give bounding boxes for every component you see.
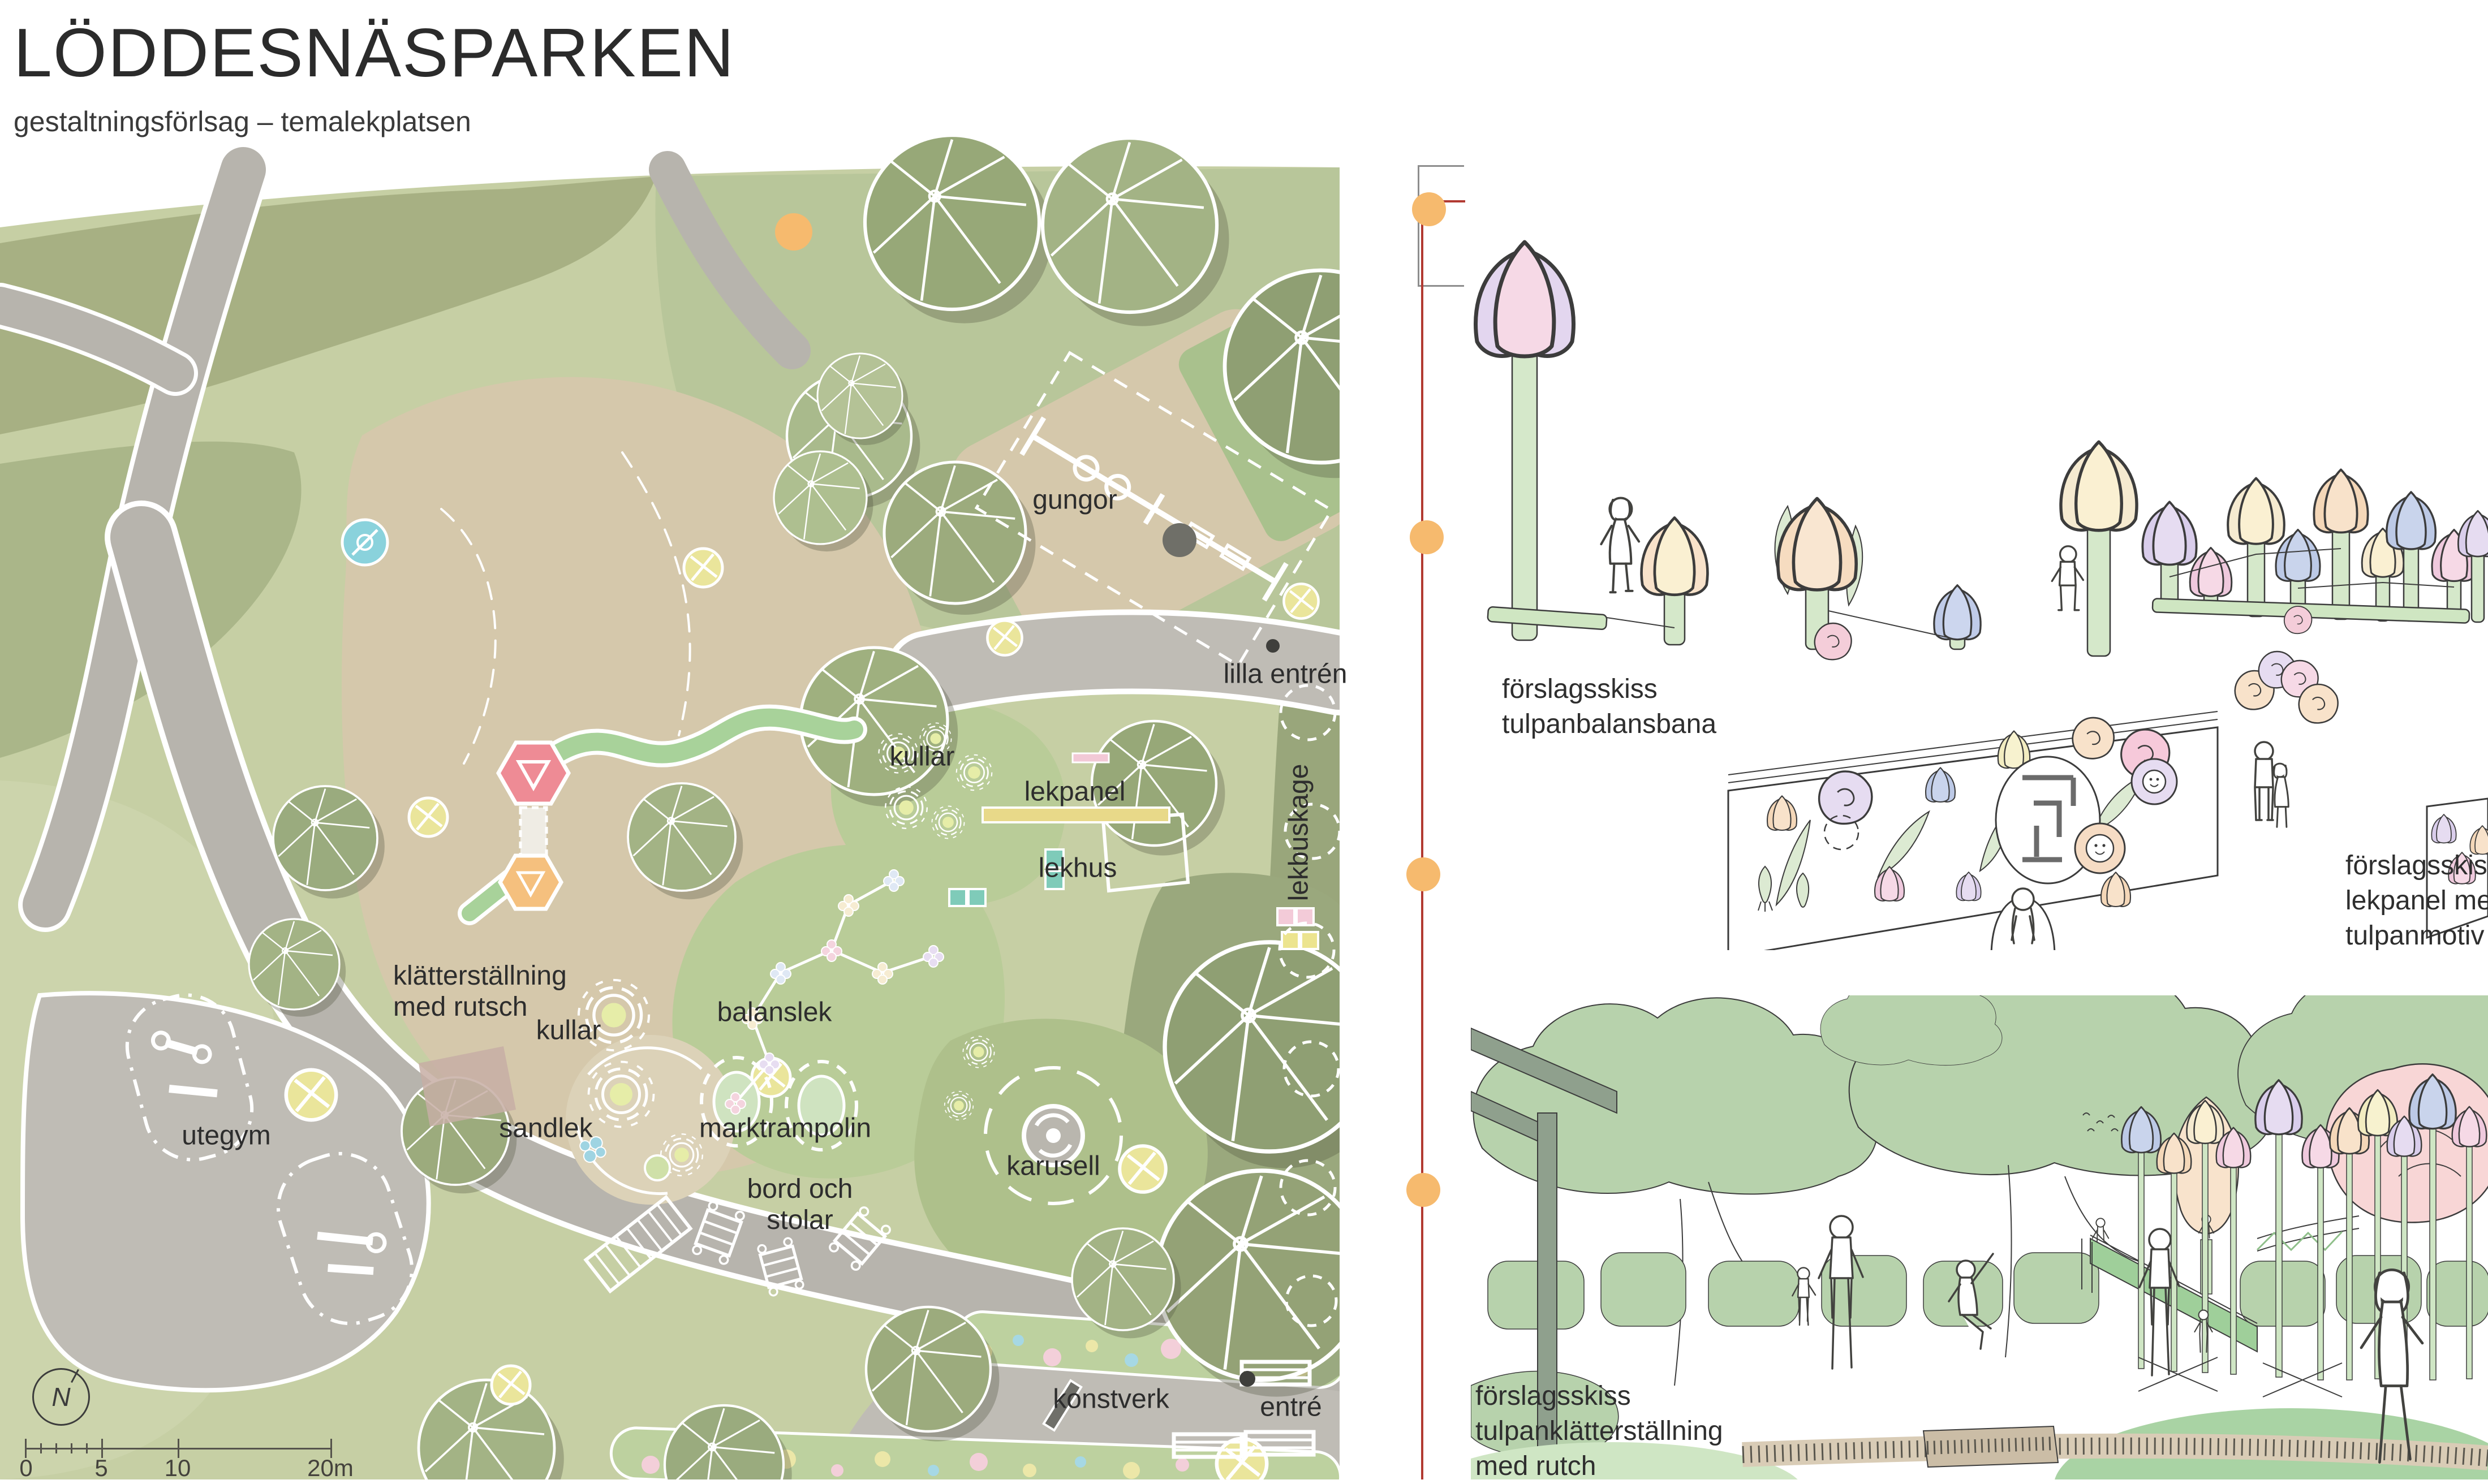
tulip-stems xyxy=(1475,242,2488,656)
children-figures xyxy=(2255,742,2288,827)
north-arrow-icon: N xyxy=(32,1368,90,1426)
flower-step-icon xyxy=(2284,606,2312,633)
page-subtitle: gestaltningsförlsag – temalekplatsen xyxy=(14,105,735,138)
page-title: LÖDDESNÄSPARKEN xyxy=(14,15,735,90)
header: LÖDDESNÄSPARKEN gestaltningsförlsag – te… xyxy=(14,15,735,138)
plan-label-bord-och-stolar: bord och stolar xyxy=(747,1174,853,1236)
scale-tick xyxy=(55,1443,57,1453)
plan-label-entre: entré xyxy=(1260,1392,1322,1423)
caption-klatterstallning-line1: förslagsskiss xyxy=(1475,1379,1723,1414)
section-marker-icon xyxy=(775,213,812,251)
play-panel-icon xyxy=(983,808,1169,822)
plan-label-marktrampolin: marktrampolin xyxy=(699,1113,871,1144)
north-label: N xyxy=(51,1382,70,1412)
plan-label-gungor: gungor xyxy=(1032,485,1117,516)
plan-label-lekbuskage: lekbuskage xyxy=(1284,764,1315,901)
scale-tick xyxy=(40,1443,42,1453)
plan-label-kullar-upper: kullar xyxy=(890,741,955,773)
caption-balansbana-line1: förslagsskiss xyxy=(1502,672,1716,707)
child-figure xyxy=(1601,498,1639,592)
plan-label-kullar-lower: kullar xyxy=(536,1015,601,1046)
plan-label-bord-line2: stolar xyxy=(747,1205,853,1236)
section-marker-icon xyxy=(1410,520,1444,554)
caption-lekpanel-line2: lekpanel med xyxy=(2345,883,2488,918)
caption-lekpanel: förslagsskiss lekpanel med tulpanmotiv xyxy=(2345,848,2488,954)
scale-label-10: 10 xyxy=(165,1455,191,1482)
caption-lekpanel-line3: tulpanmotiv xyxy=(2345,918,2488,954)
scale-tick xyxy=(86,1443,88,1453)
site-plan xyxy=(0,0,1340,1479)
plan-label-sandlek: sandlek xyxy=(499,1113,592,1144)
plan-label-klatterstallning: klätterställning med rutsch xyxy=(393,960,567,1023)
plan-label-klatterstallning-line1: klätterställning xyxy=(393,960,567,991)
plan-label-konstverk: konstverk xyxy=(1053,1384,1169,1415)
scale-bar: 0 5 10 20m xyxy=(25,1436,342,1479)
section-bracket-vertical xyxy=(1418,165,1419,287)
caption-klatterstallning-line2: tulpanklätterställning xyxy=(1475,1414,1723,1449)
section-marker-icon xyxy=(1412,192,1446,226)
scale-label-5: 5 xyxy=(94,1455,107,1482)
plan-label-lekpanel: lekpanel xyxy=(1025,776,1126,808)
child-figure xyxy=(2052,546,2083,610)
section-bracket-top xyxy=(1418,165,1464,167)
scale-label-0: 0 xyxy=(19,1455,32,1482)
section-marker-icon xyxy=(1406,1173,1440,1207)
section-marker-icon xyxy=(1406,857,1440,891)
design-sheet: { "header": { "title": "LÖDDESNÄSPARKEN"… xyxy=(0,0,2488,1479)
plan-label-utegym: utegym xyxy=(182,1120,270,1151)
plan-label-karusell: karusell xyxy=(1006,1151,1100,1182)
plan-label-lilla-entren: lilla entrén xyxy=(1224,659,1348,690)
scale-label-20: 20m xyxy=(307,1455,354,1482)
sketch-tulpanbalansbana xyxy=(1471,158,2488,667)
caption-klatterstallning: förslagsskiss tulpanklätterställning med… xyxy=(1475,1379,1723,1484)
caption-klatterstallning-line3: med rutch xyxy=(1475,1449,1723,1484)
caption-balansbana: förslagsskiss tulpanbalansbana xyxy=(1502,672,1716,742)
rope-bridge xyxy=(2257,1216,2359,1251)
caption-lekpanel-line1: förslagsskiss xyxy=(2345,848,2488,883)
section-red-line xyxy=(1421,208,1423,1479)
water-point-icon xyxy=(342,520,388,565)
section-bracket-bottom xyxy=(1418,285,1464,287)
caption-balansbana-line2: tulpanbalansbana xyxy=(1502,707,1716,742)
plan-label-balanslek: balanslek xyxy=(717,997,832,1028)
plan-label-lekhus: lekhus xyxy=(1039,853,1117,884)
plan-label-bord-line1: bord och xyxy=(747,1174,853,1205)
tree-canopies xyxy=(1473,995,2488,1386)
scale-tick xyxy=(71,1443,72,1453)
